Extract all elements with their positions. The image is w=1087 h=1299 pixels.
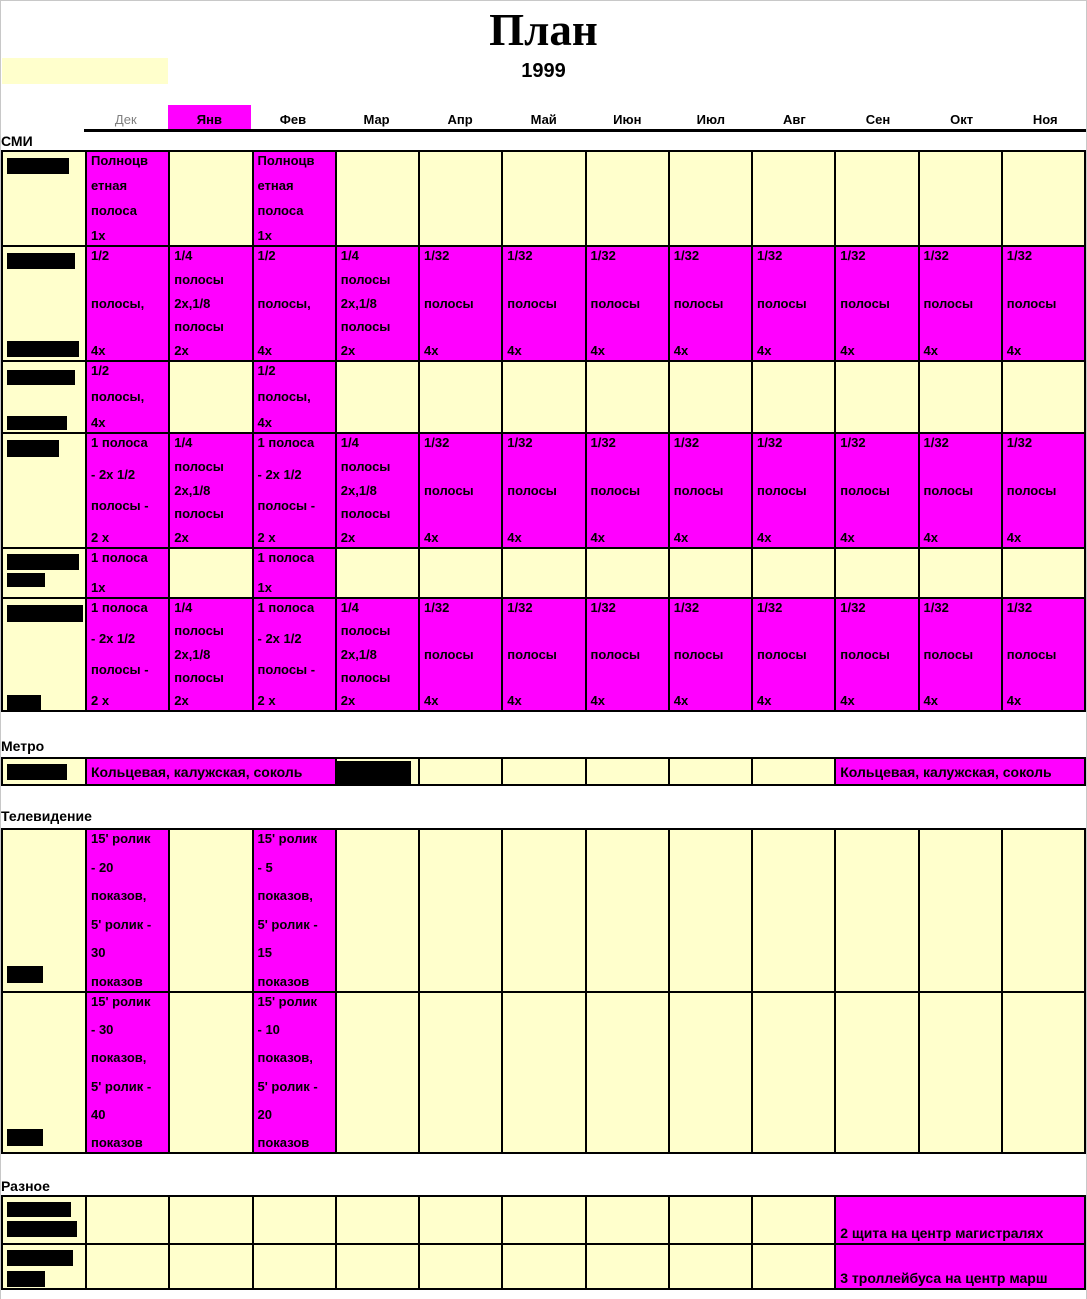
cell-text: 2 щита на центр магистралях <box>840 1226 1082 1240</box>
cell-text: 1/32 <box>924 601 999 615</box>
month-header-4[interactable]: Апр <box>418 105 502 129</box>
cell-text: 1 полоса <box>258 601 333 615</box>
cell-text: 4х <box>1007 694 1082 708</box>
cell-text: 2х,1/8 <box>341 648 416 662</box>
cell-text: полосы - <box>91 663 166 677</box>
table-cell[interactable] <box>168 152 251 245</box>
redacted-text <box>7 695 41 710</box>
cell-text: полосы <box>757 297 832 311</box>
row-label-cell[interactable] <box>3 549 85 597</box>
cell-text: полосы - <box>91 499 166 513</box>
table-cell[interactable] <box>834 993 917 1152</box>
table-cell[interactable] <box>751 362 834 432</box>
table-cell[interactable] <box>1001 993 1084 1152</box>
cell-text: показов <box>258 975 333 989</box>
cell-text: 4х <box>424 694 499 708</box>
table-cell[interactable]: 3 троллейбуса на центр марш <box>834 1245 1084 1288</box>
redacted-text <box>7 1202 71 1217</box>
redacted-text <box>7 440 59 457</box>
cell-text: полосы - <box>258 499 333 513</box>
cell-text: полосы <box>174 624 249 638</box>
cell-text: полосы, <box>91 390 166 404</box>
table-cell[interactable]: 1 полоса1х <box>85 549 168 597</box>
highlighted-empty-cell[interactable] <box>2 58 168 84</box>
table-cell[interactable] <box>168 830 251 991</box>
cell-text: 1х <box>258 229 333 243</box>
table-cell[interactable] <box>834 152 917 245</box>
cell-text: 1/32 <box>840 436 915 450</box>
table-cell[interactable] <box>418 1245 501 1288</box>
cell-text: 1/4 <box>341 436 416 450</box>
cell-text: 3 троллейбуса на центр марш <box>840 1271 1082 1285</box>
table-cell[interactable]: 1/4полосы2х,1/8полосы2х <box>335 434 418 547</box>
table-cell[interactable] <box>335 993 418 1152</box>
table-cell[interactable] <box>418 152 501 245</box>
table-cell[interactable] <box>418 759 501 784</box>
section-header: СМИ <box>1 133 1086 150</box>
table-cell[interactable] <box>751 1245 834 1288</box>
cell-text: полосы <box>591 484 666 498</box>
cell-text: 15' ролик <box>91 995 166 1009</box>
month-header-6[interactable]: Июн <box>586 105 670 129</box>
cell-text: 1/32 <box>507 601 582 615</box>
cell-text: Полноцв <box>91 154 166 168</box>
table-cell[interactable]: 1/2полосы,4х <box>252 362 335 432</box>
month-header-7[interactable]: Июл <box>669 105 753 129</box>
cell-text: 15' ролик <box>91 832 166 846</box>
cell-text: 2х,1/8 <box>341 484 416 498</box>
month-header-10[interactable]: Окт <box>920 105 1004 129</box>
redacted-text <box>7 1271 45 1287</box>
table-cell[interactable]: 1/32полосы4х <box>418 247 501 360</box>
row-label-cell[interactable] <box>3 1245 85 1288</box>
month-header-11[interactable]: Ноя <box>1003 105 1087 129</box>
table-cell[interactable] <box>418 830 501 991</box>
month-header-3[interactable]: Мар <box>335 105 419 129</box>
cell-text: 1/32 <box>840 249 915 263</box>
cell-text: етная <box>91 179 166 193</box>
table-cell[interactable]: 15' ролик- 30показов,5' ролик -40показов <box>85 993 168 1152</box>
cell-text: 5' ролик - <box>258 918 333 932</box>
table-cell[interactable] <box>335 1197 418 1243</box>
month-header-2[interactable]: Фев <box>251 105 335 129</box>
table-cell[interactable]: 1/32полосы4х <box>751 434 834 547</box>
redacted-text <box>335 761 411 784</box>
table-cell[interactable]: 1/32полосы4х <box>668 599 751 710</box>
month-header-5[interactable]: Май <box>502 105 586 129</box>
cell-text: 1/32 <box>757 436 832 450</box>
cell-text: 1/32 <box>757 249 832 263</box>
table-cell[interactable]: 15' ролик- 5показов,5' ролик -15показов <box>252 830 335 991</box>
cell-text: полосы <box>674 648 749 662</box>
cell-text: 2х <box>174 531 249 545</box>
table-cell[interactable]: 1/32полосы4х <box>501 247 584 360</box>
table-cell[interactable] <box>1001 152 1084 245</box>
table-cell[interactable] <box>585 1197 668 1243</box>
cell-text: 4х <box>924 531 999 545</box>
row-label-cell[interactable] <box>3 993 85 1152</box>
table-cell[interactable] <box>501 759 584 784</box>
table-cell[interactable]: 1 полоса- 2х 1/2полосы -2 х <box>85 434 168 547</box>
table-row: 2 щита на центр магистралях <box>1 1195 1086 1243</box>
table-cell[interactable] <box>918 830 1001 991</box>
table-cell[interactable]: 1/2полосы,4х <box>252 247 335 360</box>
cell-text: 1х <box>91 581 166 595</box>
table-cell[interactable]: 1 полоса- 2х 1/2полосы -2 х <box>252 434 335 547</box>
cell-text: 1/32 <box>924 436 999 450</box>
cell-text: 2 х <box>258 531 333 545</box>
table-cell[interactable]: 1/32полосы4х <box>918 247 1001 360</box>
cell-text: полосы - <box>258 663 333 677</box>
cell-text: 1/32 <box>1007 436 1082 450</box>
table-cell[interactable] <box>668 362 751 432</box>
table-cell[interactable]: 1/32полосы4х <box>501 599 584 710</box>
table-row: Кольцевая, калужская, сокольКольцевая, к… <box>1 757 1086 786</box>
table-cell[interactable]: 1/32полосы4х <box>501 434 584 547</box>
cell-text: 15' ролик <box>258 832 333 846</box>
table-cell[interactable]: 1/32полосы4х <box>918 434 1001 547</box>
cell-text: - 20 <box>91 861 166 875</box>
cell-text: 2х,1/8 <box>174 484 249 498</box>
table-cell[interactable] <box>168 1245 251 1288</box>
table-cell[interactable] <box>668 830 751 991</box>
redacted-text <box>7 370 75 385</box>
cell-text: 4х <box>258 416 333 430</box>
table-cell[interactable] <box>585 830 668 991</box>
table-cell[interactable] <box>668 759 751 784</box>
table-cell[interactable] <box>751 759 834 784</box>
cell-text: полосы <box>424 648 499 662</box>
redacted-text <box>7 341 79 357</box>
cell-text: 1/32 <box>1007 601 1082 615</box>
table-cell[interactable] <box>585 759 668 784</box>
table-cell[interactable] <box>918 549 1001 597</box>
cell-text: полосы, <box>91 297 166 311</box>
cell-text: 4х <box>924 694 999 708</box>
cell-text: показов, <box>258 1051 333 1065</box>
cell-text: 20 <box>258 1108 333 1122</box>
cell-text: 4х <box>507 531 582 545</box>
table-row: 1 полоса- 2х 1/2полосы -2 х1/4полосы2х,1… <box>1 432 1086 547</box>
table-cell[interactable]: 1/32полосы4х <box>751 247 834 360</box>
row-label-cell[interactable] <box>3 362 85 432</box>
table-cell[interactable]: 1/32полосы4х <box>418 434 501 547</box>
table-cell[interactable] <box>834 362 917 432</box>
cell-text: 30 <box>91 946 166 960</box>
cell-text: 1 полоса <box>91 601 166 615</box>
table-cell[interactable]: 1 полоса- 2х 1/2полосы -2 х <box>85 599 168 710</box>
row-label-cell[interactable] <box>3 830 85 991</box>
table-cell[interactable]: 1/32полосы4х <box>668 247 751 360</box>
cell-text: 5' ролик - <box>91 918 166 932</box>
row-label-cell[interactable] <box>3 434 85 547</box>
table-cell[interactable]: 1/32полосы4х <box>918 599 1001 710</box>
cell-text: 4х <box>1007 531 1082 545</box>
section-3: Разное2 щита на центр магистралях3 тролл… <box>1 1178 1086 1290</box>
cell-text: полосы <box>674 297 749 311</box>
table-cell[interactable] <box>751 993 834 1152</box>
table-cell[interactable]: 1/4полосы2х,1/8полосы2х <box>335 599 418 710</box>
cell-text: полосы <box>591 297 666 311</box>
table-cell[interactable]: Кольцевая, калужская, соколь <box>834 759 1084 784</box>
cell-text: 4х <box>757 344 832 358</box>
cell-text: 1 полоса <box>258 551 333 565</box>
cell-text: 15' ролик <box>258 995 333 1009</box>
cell-text: полосы <box>341 273 416 287</box>
table-cell[interactable]: 1/2полосы,4х <box>85 247 168 360</box>
table-cell[interactable]: 1/32полосы4х <box>668 434 751 547</box>
table-cell[interactable] <box>751 830 834 991</box>
cell-text: 5' ролик - <box>91 1080 166 1094</box>
redacted-text <box>7 1221 77 1237</box>
table-row: 1 полоса1х1 полоса1х <box>1 547 1086 597</box>
table-cell[interactable] <box>501 152 584 245</box>
cell-text: полосы <box>1007 648 1082 662</box>
row-label-cell[interactable] <box>3 247 85 360</box>
row-label-cell[interactable] <box>3 152 85 245</box>
table-cell[interactable]: 1/4полосы2х,1/8полосы2х <box>168 434 251 547</box>
table-cell[interactable] <box>751 152 834 245</box>
table-cell[interactable]: 1/4полосы2х,1/8полосы2х <box>335 247 418 360</box>
cell-text: 4х <box>91 416 166 430</box>
cell-text: 4х <box>674 531 749 545</box>
cell-text: 15 <box>258 946 333 960</box>
row-label-cell[interactable] <box>3 1197 85 1243</box>
cell-text: - 2х 1/2 <box>91 468 166 482</box>
cell-text: 1 полоса <box>91 551 166 565</box>
table-cell[interactable] <box>918 993 1001 1152</box>
cell-text: 4х <box>1007 344 1082 358</box>
cell-text: полосы <box>174 671 249 685</box>
cell-text: 2х <box>174 344 249 358</box>
cell-text: полосы <box>757 648 832 662</box>
cell-text: показов, <box>91 1051 166 1065</box>
month-header-row: ДекЯнвФевМарАпрМайИюнИюлАвгСенОктНоя <box>84 105 1087 132</box>
section-2: Телевидение15' ролик- 20показов,5' ролик… <box>1 808 1086 1154</box>
table-cell[interactable] <box>585 1245 668 1288</box>
table-cell[interactable] <box>501 1197 584 1243</box>
cell-text: 1/32 <box>674 601 749 615</box>
redacted-text <box>7 158 69 174</box>
table-cell[interactable] <box>252 1245 335 1288</box>
cell-text: 2х <box>341 531 416 545</box>
table-cell[interactable]: 1/32полосы4х <box>1001 247 1084 360</box>
table-cell[interactable] <box>585 549 668 597</box>
cell-text: 2х <box>174 694 249 708</box>
table-cell[interactable]: 1/2полосы,4х <box>85 362 168 432</box>
table-cell[interactable] <box>168 549 251 597</box>
cell-text: 1х <box>258 581 333 595</box>
cell-text: 1/4 <box>174 436 249 450</box>
table-cell[interactable] <box>418 1197 501 1243</box>
table-cell[interactable] <box>335 549 418 597</box>
cell-text: 4х <box>507 694 582 708</box>
table-cell[interactable] <box>668 549 751 597</box>
cell-text: 1/32 <box>591 436 666 450</box>
redacted-text <box>7 1129 43 1146</box>
month-header-1[interactable]: Янв <box>168 105 252 129</box>
table-cell[interactable] <box>168 362 251 432</box>
cell-text: полосы <box>507 648 582 662</box>
cell-text: 1/32 <box>591 249 666 263</box>
plan-page: План 1999 ДекЯнвФевМарАпрМайИюнИюлАвгСен… <box>0 0 1087 1299</box>
table-cell[interactable] <box>751 549 834 597</box>
cell-text: 1/32 <box>507 249 582 263</box>
table-cell[interactable] <box>85 1245 168 1288</box>
redacted-text <box>7 554 79 570</box>
cell-text: - 2х 1/2 <box>258 468 333 482</box>
cell-text: 1/4 <box>341 601 416 615</box>
cell-text: полосы <box>174 460 249 474</box>
table-cell[interactable]: 1/32полосы4х <box>418 599 501 710</box>
month-header-8[interactable]: Авг <box>753 105 837 129</box>
table-cell[interactable] <box>834 830 917 991</box>
row-label-cell[interactable] <box>3 759 85 784</box>
table-cell[interactable] <box>1001 830 1084 991</box>
cell-text: 2 х <box>91 531 166 545</box>
table-cell[interactable] <box>585 152 668 245</box>
table-cell[interactable] <box>252 1197 335 1243</box>
cell-text: 4х <box>91 344 166 358</box>
cell-text: полосы <box>1007 484 1082 498</box>
cell-text: 2х,1/8 <box>174 297 249 311</box>
cell-text: 1/32 <box>424 249 499 263</box>
cell-text: 2 х <box>258 694 333 708</box>
table-cell[interactable] <box>501 1245 584 1288</box>
table-cell[interactable] <box>668 993 751 1152</box>
table-cell[interactable]: 1/32полосы4х <box>1001 599 1084 710</box>
table-cell[interactable] <box>335 1245 418 1288</box>
table-cell[interactable]: 15' ролик- 10показов,5' ролик -20показов <box>252 993 335 1152</box>
table-cell[interactable] <box>168 993 251 1152</box>
cell-text: полосы <box>840 648 915 662</box>
cell-text: 2 х <box>91 694 166 708</box>
table-cell[interactable] <box>918 362 1001 432</box>
row-label-cell[interactable] <box>3 599 85 710</box>
plan-table: СМИПолноцветнаяполоса1хПолноцветнаяполос… <box>1 133 1086 1290</box>
cell-text: 1/32 <box>757 601 832 615</box>
cell-text: полосы, <box>258 390 333 404</box>
table-cell[interactable]: 1/32полосы4х <box>585 599 668 710</box>
table-cell[interactable] <box>585 993 668 1152</box>
cell-text: 4х <box>840 531 915 545</box>
cell-text: 1/2 <box>258 249 333 263</box>
table-cell[interactable]: 1/4полосы2х,1/8полосы2х <box>168 247 251 360</box>
cell-text: полосы <box>840 484 915 498</box>
cell-text: полосы <box>924 297 999 311</box>
table-cell[interactable] <box>335 830 418 991</box>
table-cell[interactable]: 2 щита на центр магистралях <box>834 1197 1084 1243</box>
cell-text: 4х <box>674 344 749 358</box>
table-cell[interactable] <box>85 1197 168 1243</box>
cell-text: полосы <box>174 507 249 521</box>
cell-text: полоса <box>258 204 333 218</box>
month-header-9[interactable]: Сен <box>836 105 920 129</box>
table-cell[interactable]: Полноцветнаяполоса1х <box>85 152 168 245</box>
table-cell[interactable] <box>1001 362 1084 432</box>
cell-text: 4х <box>840 344 915 358</box>
table-cell[interactable] <box>501 549 584 597</box>
section-header: Разное <box>1 1178 1086 1195</box>
cell-text: 1 полоса <box>258 436 333 450</box>
cell-text: 1/4 <box>341 249 416 263</box>
cell-text: полосы <box>341 460 416 474</box>
table-cell[interactable]: 1 полоса1х <box>252 549 335 597</box>
cell-text: показов, <box>258 889 333 903</box>
cell-text: 40 <box>91 1108 166 1122</box>
cell-text: 4х <box>591 531 666 545</box>
table-cell[interactable]: Полноцветнаяполоса1х <box>252 152 335 245</box>
cell-text: 1/4 <box>174 601 249 615</box>
cell-text: 1/32 <box>924 249 999 263</box>
table-cell[interactable] <box>501 362 584 432</box>
table-cell[interactable] <box>501 993 584 1152</box>
cell-text: полосы, <box>258 297 333 311</box>
cell-text: 4х <box>507 344 582 358</box>
redacted-text <box>7 605 83 622</box>
table-cell[interactable] <box>585 362 668 432</box>
table-cell[interactable]: 15' ролик- 20показов,5' ролик -30показов <box>85 830 168 991</box>
table-cell[interactable] <box>834 549 917 597</box>
table-row: 1/2полосы,4х1/4полосы2х,1/8полосы2х1/2по… <box>1 245 1086 360</box>
table-cell[interactable] <box>918 152 1001 245</box>
table-cell[interactable] <box>668 1245 751 1288</box>
cell-text: полосы <box>424 297 499 311</box>
cell-text: етная <box>258 179 333 193</box>
cell-text: Полноцв <box>258 154 333 168</box>
month-header-0[interactable]: Дек <box>84 105 168 129</box>
section-1: МетроКольцевая, калужская, сокольКольцев… <box>1 738 1086 786</box>
table-cell[interactable] <box>335 362 418 432</box>
cell-text: полосы <box>341 624 416 638</box>
cell-text: - 30 <box>91 1023 166 1037</box>
redacted-text <box>7 764 67 780</box>
table-cell[interactable]: 1/4полосы2х,1/8полосы2х <box>168 599 251 710</box>
cell-text: 1/32 <box>674 436 749 450</box>
cell-text: полоса <box>91 204 166 218</box>
table-cell[interactable] <box>335 152 418 245</box>
section-0: СМИПолноцветнаяполоса1хПолноцветнаяполос… <box>1 133 1086 712</box>
cell-text: показов <box>258 1136 333 1150</box>
table-cell[interactable]: 1/32полосы4х <box>585 247 668 360</box>
cell-text: полосы <box>174 273 249 287</box>
table-cell[interactable]: 1 полоса- 2х 1/2полосы -2 х <box>252 599 335 710</box>
cell-text: 4х <box>757 531 832 545</box>
cell-text: 1/32 <box>1007 249 1082 263</box>
table-cell[interactable]: 1/32полосы4х <box>585 434 668 547</box>
cell-text: полосы <box>341 507 416 521</box>
cell-text: 4х <box>840 694 915 708</box>
cell-text: полосы <box>924 648 999 662</box>
table-cell[interactable]: 1/32полосы4х <box>1001 434 1084 547</box>
table-cell[interactable] <box>668 152 751 245</box>
table-cell[interactable] <box>751 1197 834 1243</box>
table-cell[interactable] <box>418 993 501 1152</box>
table-cell[interactable] <box>335 759 418 784</box>
table-cell[interactable]: 1/32полосы4х <box>834 247 917 360</box>
table-cell[interactable] <box>418 362 501 432</box>
table-cell[interactable]: 1/32полосы4х <box>834 434 917 547</box>
table-cell[interactable] <box>1001 549 1084 597</box>
table-cell[interactable]: 1/32полосы4х <box>834 599 917 710</box>
table-cell[interactable] <box>418 549 501 597</box>
table-row: 3 троллейбуса на центр марш <box>1 1243 1086 1290</box>
table-cell[interactable] <box>168 1197 251 1243</box>
table-cell[interactable]: 1/32полосы4х <box>751 599 834 710</box>
table-cell[interactable] <box>501 830 584 991</box>
table-cell[interactable] <box>668 1197 751 1243</box>
table-cell[interactable]: Кольцевая, калужская, соколь <box>85 759 335 784</box>
